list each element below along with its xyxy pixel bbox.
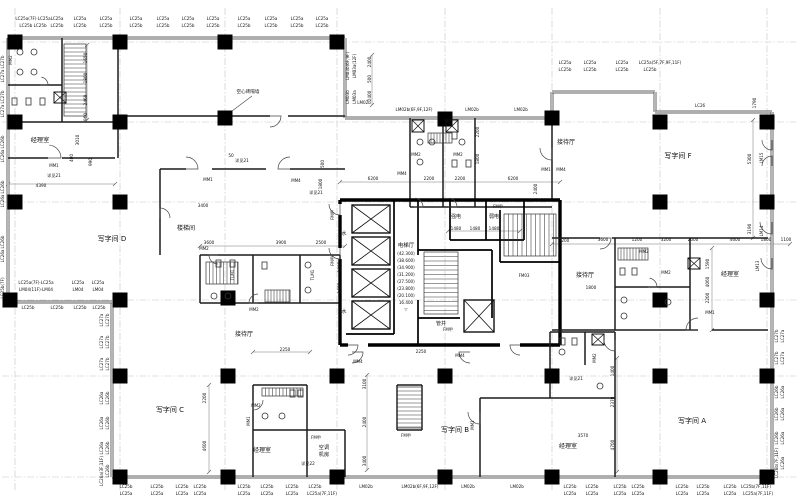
dimension-label: 5300 [747, 153, 752, 164]
dimension-label: 1790 [752, 97, 757, 108]
window-schedule-label: LC26a [780, 407, 785, 420]
elevator-level-label: (38.600) [397, 258, 415, 263]
elevator-shafts [352, 205, 494, 332]
room-label: 楼梯间 [177, 224, 195, 232]
window-schedule-label: LC26b [105, 441, 110, 454]
window-schedule-label: LC25a [74, 16, 87, 21]
door-schedule-label: FM甲 [311, 435, 321, 440]
room-label: 经理室 [253, 446, 271, 454]
dimension-label: 1800 [337, 261, 342, 272]
window-schedule-label: LC26b [0, 180, 5, 193]
window-schedule-label: LC27a [780, 329, 785, 342]
door-schedule-label: MM1 [541, 167, 551, 172]
door-schedule-label: MM1 [705, 310, 715, 315]
elevator-level-label: (31.200) [397, 272, 415, 277]
door-schedule-label: FM甲 [330, 210, 335, 220]
room-label: 接待厅 [557, 138, 575, 146]
dimension-label: 960 [83, 113, 88, 121]
dimension-label: 3400 [198, 203, 209, 208]
dimension-label: 6200 [508, 176, 519, 181]
window-schedule-label: LC25b [697, 484, 710, 489]
window-schedule-label: LC25a [151, 491, 164, 496]
window-schedule-label: LC25a [586, 491, 599, 496]
window-schedule-label: LC25a [724, 491, 737, 496]
window-schedule-label: LC25a [265, 16, 278, 21]
window-schedule-label: LC25a(7F)·LC25a [15, 16, 51, 21]
room-label: 写字间 D [98, 234, 127, 243]
window-schedule-label: LC25b [238, 484, 251, 489]
window-schedule-label: LC27b [105, 313, 110, 326]
window-schedule-label: LM02b [359, 484, 373, 489]
window-schedule-label: LC26b [105, 416, 110, 429]
elevator-level-label: ▽ [404, 307, 408, 312]
door-schedule-label: MM2 [199, 246, 209, 251]
window-schedule-label: LC26a [780, 385, 785, 398]
window-schedule-label: LC26a [99, 441, 104, 454]
window-schedule-label: LM02b [510, 484, 524, 489]
dimension-label: 2460 [83, 94, 88, 105]
dimension-label: 2200 [455, 176, 466, 181]
door-schedule-label: MM1 [49, 163, 59, 168]
window-schedule-label: LC25b [676, 484, 689, 489]
door-schedule-label: MM1 [470, 420, 475, 430]
dimension-label: 2500 [316, 240, 327, 245]
door-schedule-label: MM1 [246, 416, 251, 426]
window-schedule-label: LC26b [0, 235, 5, 248]
window-schedule-label: LM04(11F)·LM04 [19, 287, 53, 292]
window-schedule-label: LC25b [176, 484, 189, 489]
door-schedule-label: FM甲 [330, 256, 335, 266]
elevator-level-label: (27.500) [397, 279, 415, 284]
window-schedule-label: LC25a [194, 491, 207, 496]
dimension-label: 2250 [280, 347, 291, 352]
window-schedule-label: LM03b(6F,9F) [345, 52, 350, 80]
window-schedule-label: LC25b [261, 484, 274, 489]
window-schedule-label: LC26a(3F,11F) [99, 456, 104, 486]
window-schedule-label: LM02b [514, 107, 528, 112]
window-schedule-label: LC26b(7F,11F) [774, 448, 779, 478]
dimension-label: 400 [69, 154, 74, 162]
window-schedule-label: LM02b(6F,9F,12F) [402, 484, 439, 489]
window-schedule-label: LC25a [614, 491, 627, 496]
window-schedule-label: LC25b [291, 23, 304, 28]
dimension-label: 4700 [610, 439, 615, 450]
dimension-label: 1590 [705, 258, 710, 269]
window-schedule-label: LC27b [774, 351, 779, 364]
window-schedule-label: LC27a [99, 357, 104, 370]
window-schedule-label: LM04 [92, 287, 103, 292]
door-schedule-label: MM2 [661, 270, 671, 275]
window-schedule-label: LC25b(7F) [0, 277, 5, 299]
dimension-label: 1480 [470, 226, 481, 231]
dimension-label: 1480 [451, 226, 462, 231]
room-label: 经理室 [559, 442, 577, 450]
window-schedule-label: LC25b [22, 305, 35, 310]
window-schedule-label: LC25a [676, 491, 689, 496]
room-label: 经理室 [31, 136, 50, 144]
elevator-level-label: (34.900) [397, 265, 415, 270]
door-schedule-label: FM甲 [443, 327, 453, 332]
dimension-label: 2200 [559, 238, 570, 243]
window-schedule-label: LC26b [0, 135, 5, 148]
door-schedule-label: FM甲 [401, 433, 411, 438]
window-schedule-label: LC25a [559, 60, 572, 65]
door-schedule-label: TLM1 [310, 269, 315, 281]
dimension-label: 4060 [705, 276, 710, 287]
window-schedule-label: LC25b [724, 484, 737, 489]
door-schedule-label: MM4 [556, 167, 566, 172]
window-schedule-label: LC26b [105, 464, 110, 477]
door-schedule-label: MM2 [453, 152, 463, 157]
window-schedule-label: LC25a [51, 16, 64, 21]
room-label: 接待厅 [576, 271, 594, 279]
shaft-label: 管井 [436, 320, 446, 327]
window-schedule-label: LC25a [697, 491, 710, 496]
dimension-label: 4600 [730, 237, 741, 242]
door-schedule-label: MM4 [353, 359, 363, 364]
window-schedule-label: LC27b [105, 357, 110, 370]
dimension-label: 4600 [202, 440, 207, 451]
window-schedule-label: LM02b [465, 107, 479, 112]
room-label: 电梯厅 [398, 241, 415, 249]
window-schedule-label: LC25b [157, 23, 170, 28]
window-schedule-label: LC25a [130, 16, 143, 21]
door-schedule-label: MM2 [592, 353, 597, 363]
window-schedule-label: LC25b [120, 484, 133, 489]
window-schedule-label: LC25a [72, 280, 85, 285]
window-schedule-label: LC25b [316, 23, 329, 28]
window-schedule-label: LC25a [584, 60, 597, 65]
dimension-label: 500 [320, 160, 325, 168]
window-schedule-label: LC25b [207, 23, 220, 28]
dimension-label: 1200 [632, 237, 643, 242]
dimension-label: 3570 [578, 433, 589, 438]
window-schedule-label: LC26a [0, 249, 5, 262]
dimension-label: 详见21 [569, 375, 583, 382]
dimension-label: 1650 [83, 52, 88, 63]
window-schedule-label: LC25b [151, 484, 164, 489]
window-schedule-label: LC25b [309, 484, 322, 489]
window-schedule-label: LC26a [780, 431, 785, 444]
floor-plan-canvas: 经理室写字间 D写字间 C写字间 B写字间 A写字间 F接待厅接待厅接待厅经理室… [0, 0, 800, 498]
dimension-label: 详见21 [47, 172, 61, 179]
door-schedule-label: MM2 [249, 307, 259, 312]
elevator-level-label: (20.100) [397, 293, 415, 298]
window-schedule-label: LM02b(6F,9F,12F) [396, 107, 433, 112]
window-schedule-label: LC27b [105, 335, 110, 348]
window-schedule-label: LC25a [120, 491, 133, 496]
dimension-label: 1480 [489, 226, 500, 231]
dimension-label: 990 [88, 158, 93, 166]
dimension-label: 3600 [598, 237, 609, 242]
dimension-label: 详见21 [235, 157, 249, 164]
dimension-label: 2370 [610, 396, 615, 407]
door-schedule-label: MM4 [291, 178, 301, 183]
window-schedule-label: LC27a [0, 69, 5, 82]
annotation-label: 空心砖隔墙 [237, 88, 260, 95]
window-schedule-label: LC26a [0, 149, 5, 162]
window-schedule-label: LC25a [291, 16, 304, 21]
window-schedule-label: LC25b [559, 67, 572, 72]
window-schedule-label: LC25b [564, 484, 577, 489]
window-schedule-label: LC25b [74, 23, 87, 28]
window-schedule-label: LC27b [0, 55, 5, 68]
dimension-label: 3900 [276, 240, 287, 245]
floor-plan: 经理室写字间 D写字间 C写字间 B写字间 A写字间 F接待厅接待厅接待厅经理室… [0, 0, 800, 498]
door-schedule-label: LM13 [755, 260, 760, 271]
shaft-label: 水 [341, 230, 346, 237]
window-schedule-label: LC25a [238, 16, 251, 21]
dimension-label: 2400 [367, 56, 372, 67]
dimension-label: 2200 [202, 392, 207, 403]
window-schedule-label: LC25b [584, 67, 597, 72]
dimension-label: 1400 [610, 365, 615, 376]
window-schedule-label: LC26a [780, 456, 785, 469]
door-schedule-label: TLM1 [230, 269, 235, 281]
window-schedule-label: LM02b [461, 484, 475, 489]
elevator-level-label: (42.300) [397, 251, 415, 256]
dimension-label: 3100 [362, 378, 367, 389]
window-schedule-label: LC25b [616, 67, 629, 72]
window-schedule-label: LC25a(5F,7F,9F,11F) [639, 60, 682, 65]
window-schedule-label: LC25a [176, 491, 189, 496]
window-schedule-label: LC26b [774, 431, 779, 444]
dimension-label: 6200 [368, 176, 379, 181]
room-label: 空调 [319, 443, 329, 451]
door-schedule-label: MM2 [639, 249, 649, 254]
door-schedule-label: MM2 [8, 55, 13, 65]
window-schedule-label: LC25b [586, 484, 599, 489]
window-schedule-label: LC25a [616, 60, 629, 65]
room-label: 接待厅 [235, 330, 253, 338]
window-schedule-label: LC25a [157, 16, 170, 21]
door-schedule-label: MM2 [411, 152, 421, 157]
window-schedule-label: LC25b [286, 484, 299, 489]
room-label: 写字间 B [441, 425, 469, 434]
window-schedule-label: LM03a [352, 90, 357, 104]
dimension-label: 2400 [362, 416, 367, 427]
window-schedule-label: LC27a [99, 313, 104, 326]
window-schedule-label: LM04 [72, 287, 83, 292]
dimension-label: 2200 [424, 176, 435, 181]
door-schedule-label: MM4 [455, 353, 465, 358]
dimension-label: 1800 [475, 153, 480, 164]
window-schedule-label: LC25a [261, 491, 274, 496]
dimension-label: 1600 [337, 282, 342, 293]
window-schedule-label: LC26b [774, 407, 779, 420]
window-schedule-label: LC27b [774, 329, 779, 342]
window-schedule-label: LC25a(7F)·LC25a [18, 280, 54, 285]
door-schedule-label: MM2 [251, 403, 261, 408]
window-schedule-label: LC26a [99, 416, 104, 429]
dimension-label: 2400 [367, 90, 372, 101]
window-schedule-label: LC26a [99, 391, 104, 404]
room-label: 写字间 F [664, 151, 691, 160]
window-schedule-label: LC25b [614, 484, 627, 489]
window-schedule-label: LC25b [74, 305, 87, 310]
window-schedule-label: LC25b [130, 23, 143, 28]
window-schedule-label: LC25b [265, 23, 278, 28]
shaft-label: 弱电 [489, 213, 499, 220]
dimension-label: 2200 [705, 292, 710, 303]
window-schedule-label: LC25b [93, 305, 106, 310]
dimension-label: 3600 [204, 240, 215, 245]
window-schedule-label: LM03b [345, 90, 350, 104]
window-schedule-label: LC25b [51, 23, 64, 28]
window-schedule-label: LC25b LC25b [19, 23, 47, 28]
window-schedule-label: LC25b [238, 23, 251, 28]
door-schedule-label: MM1 [203, 177, 213, 182]
window-schedule-label: LC26 [695, 103, 706, 108]
window-schedule-label: LC27b [0, 90, 5, 103]
dimension-label: 2400 [533, 183, 538, 194]
window-schedule-label: LM03a(12F) [352, 53, 357, 78]
window-schedule-label: LC25a [632, 491, 645, 496]
elevator-level-label: (23.800) [397, 286, 415, 291]
door-schedule-label: FM03 [519, 273, 530, 278]
window-schedule-label: LC25a [564, 491, 577, 496]
room-label: 写字间 C [156, 405, 184, 414]
window-schedule-label: LC25a [92, 280, 105, 285]
dimension-label: 50 [228, 153, 234, 158]
window-schedule-label: LC25a(7F,11F) [307, 491, 337, 496]
shaft-label: 水 [341, 308, 346, 315]
window-schedule-label: LC25a(7F,11F) [743, 491, 773, 496]
window-schedule-label: LC25a [316, 16, 329, 21]
shaft-label: 强电 [451, 213, 461, 220]
dimension-label: 2000 [688, 237, 699, 242]
dimension-label: 1800 [761, 237, 772, 242]
window-schedule-label: LC25b [100, 23, 113, 28]
dimension-label: 2200 [475, 126, 480, 137]
dimension-label: 4390 [36, 183, 47, 188]
window-schedule-label: LC26a [0, 194, 5, 207]
room-label: 写字间 A [678, 416, 706, 425]
door-schedule-label: LM14 [759, 225, 764, 236]
dimension-label: 详见21 [309, 189, 323, 196]
window-schedule-label: LC27a [0, 104, 5, 117]
dimension-label: 3400 [362, 455, 367, 466]
dimension-label: 3200 [661, 237, 672, 242]
window-schedule-label: LC25b(7F,11F) [741, 484, 771, 489]
window-schedule-label: LC25a [238, 491, 251, 496]
window-schedule-label: LC25b [194, 484, 207, 489]
dimension-label: 详见22 [301, 460, 315, 467]
dimension-label: 1800 [318, 178, 323, 189]
window-schedule-label: LC27a [780, 351, 785, 364]
dimension-label: 1800 [586, 285, 597, 290]
window-schedule-label: LC26b [774, 385, 779, 398]
dimension-label: 3010 [75, 134, 80, 145]
dimension-label: 2250 [416, 349, 427, 354]
window-schedule-label: LC26b [105, 391, 110, 404]
window-schedule-label: LC27a [99, 335, 104, 348]
window-schedule-label: LC25a [100, 16, 113, 21]
dimension-label: 3190 [747, 223, 752, 234]
vent-shafts [54, 92, 700, 345]
window-schedule-label: LC25b [51, 305, 64, 310]
window-schedule-label: LC25a [182, 16, 195, 21]
door-schedule-label: LM15 [759, 152, 764, 163]
window-schedule-label: LC25b [632, 484, 645, 489]
elevator-level-label: 16.400 [399, 300, 414, 305]
window-schedule-label: LC25b [182, 23, 195, 28]
room-label: 机房 [319, 450, 329, 458]
dimension-label: 500 [367, 75, 372, 83]
window-schedule-label: LC25b [644, 67, 657, 72]
door-schedule-label: FM甲 [493, 204, 503, 209]
dimension-label: 1100 [781, 237, 792, 242]
room-label: 经理室 [721, 270, 739, 278]
window-schedule-label: LC25a [286, 491, 299, 496]
window-schedule-label: LC25a [207, 16, 220, 21]
dimension-label: 1800 [83, 72, 88, 83]
door-schedule-label: MM4 [397, 171, 407, 176]
